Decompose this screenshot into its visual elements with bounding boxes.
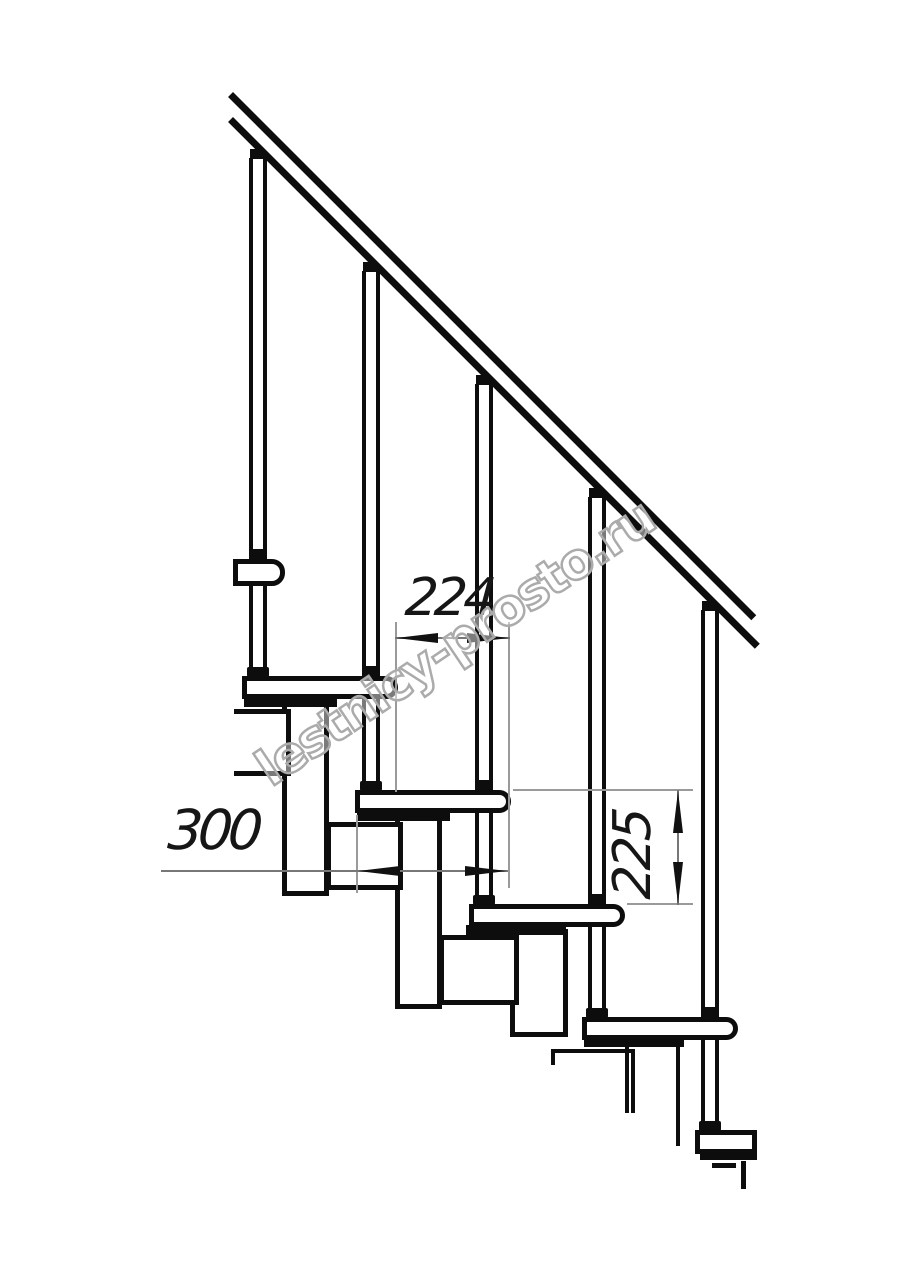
dim-depth-line [161,870,508,872]
stringer-module-s2 [439,935,519,1005]
baluster-4-cap [589,488,604,498]
baluster-2-foot-mount [360,781,382,791]
baluster-5 [701,610,719,1130]
stringer-break-line-v1 [551,1049,555,1065]
baluster-2-cap [363,262,378,272]
baluster-1-pass-mount [250,549,265,561]
dim-depth-arrow-left [358,866,400,876]
tread-2 [355,790,511,813]
dim-depth-extension-left [356,815,358,893]
stringer-break-line-h1 [551,1049,635,1053]
baluster-5-foot-mount [699,1121,721,1131]
tread-5-break-step-h [712,1163,736,1168]
baluster-3-foot-mount [473,895,495,905]
dim-run-extension-right [508,622,510,888]
dim-depth-label: 300 [148,803,260,858]
baluster-1-foot-mount [247,667,269,677]
watermark-text: lestnicy-prosto.ru [222,471,689,815]
staircase-drawing: 224 300 225 lestnicy-prosto.ru [0,0,914,1280]
baluster-3-pass-mount [476,780,491,792]
stringer-break-line-v4 [676,1042,680,1146]
dim-depth-arrow-right [465,866,507,876]
baluster-3-cap [476,375,491,385]
dim-rise-label: 225 [579,776,687,934]
baluster-1-cap [250,149,265,159]
baluster-5-pass-mount [702,1007,717,1019]
tread-4 [582,1017,738,1040]
tread-5-break-step-v [741,1161,746,1189]
baluster-4-foot-mount [586,1008,608,1018]
stringer-break-line-v3 [625,1042,629,1113]
stringer-module-s1 [326,822,403,890]
baluster-5-cap [702,601,717,611]
baluster-1 [249,158,267,676]
tread-5-partial [695,1130,757,1154]
tread-top-partial [233,559,285,586]
stringer-break-line-v2 [631,1049,635,1113]
